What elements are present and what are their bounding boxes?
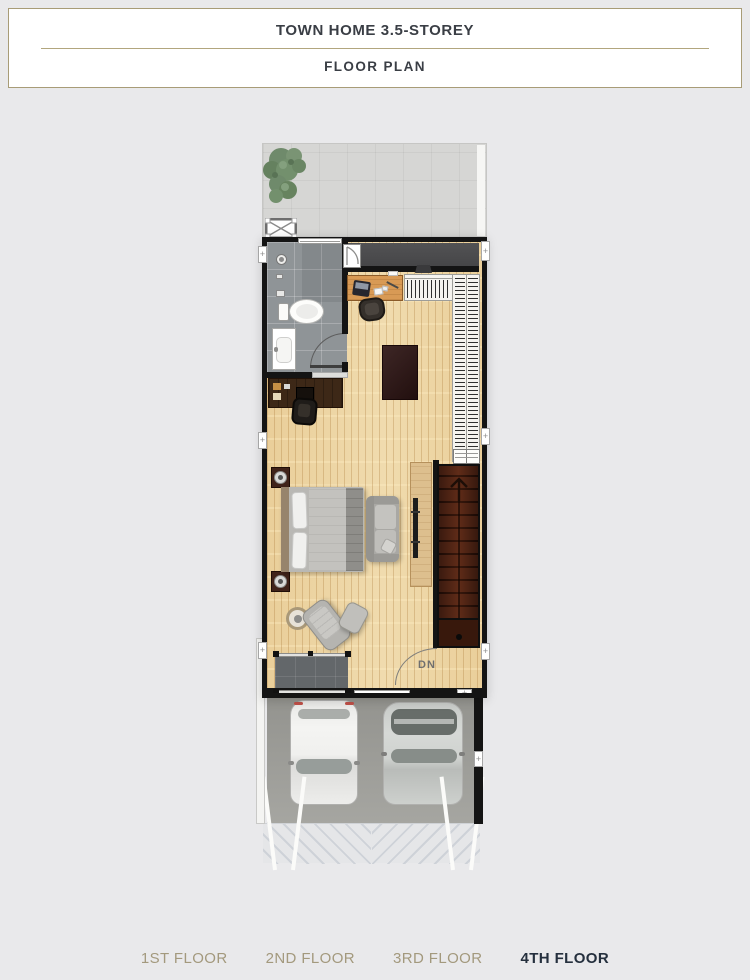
laptop-screen [355,282,369,290]
rail-post [273,651,279,657]
page-title: TOWN HOME 3.5-STOREY [9,22,741,39]
tv-bracket [411,541,420,543]
sofa-arm [374,554,399,562]
hanger-slats [455,278,465,459]
blanket-fold [346,488,363,571]
rail-post [345,651,351,657]
roof-bar [394,719,454,724]
nightstand [271,467,290,488]
tv-bracket [411,511,420,513]
rail-post [273,689,279,697]
tree-icon [263,145,315,203]
windshield [296,759,352,774]
hanger-slats [407,280,450,298]
page-header: TOWN HOME 3.5-STOREY FLOOR PLAN [8,8,742,88]
door-track [357,693,407,694]
stairs [437,464,480,648]
paper-icon [382,285,389,291]
door-arc [344,245,360,267]
rear-window [298,709,350,719]
balcony-rail [275,690,348,697]
side-mirror [354,761,360,765]
terrace-gutter [477,145,485,236]
bathroom-door-leaf [310,365,345,368]
taillight [345,702,354,705]
pillow [291,532,307,570]
paper-icon [388,271,398,276]
side-gutter [256,638,265,824]
shelf-unit [453,449,480,464]
valve-icon [276,274,283,279]
tv-console [410,462,432,587]
headboard [281,487,289,572]
window [298,238,342,244]
rack-rail [405,278,452,279]
side-mirror [459,752,465,756]
lamp-center [278,475,283,480]
side-mirror [381,752,387,756]
laptop-icon [352,280,371,297]
tab-4th-floor[interactable]: 4TH FLOOR [520,950,609,967]
service-ledge [348,243,479,268]
hanger-slats [468,278,478,459]
rail-post [345,689,351,697]
study-chair [291,397,318,426]
tab-2nd-floor[interactable]: 2ND FLOOR [266,950,355,967]
sofa-back [366,496,374,562]
window-marker: + [258,432,267,449]
stair-stringer [458,486,460,621]
ramp-marking-left [270,776,298,870]
ac-unit-icon [415,265,432,273]
faucet [274,347,278,352]
sink-basin [276,337,292,363]
window-marker: + [258,246,267,263]
toilet-bowl [296,304,318,319]
shelf-line [455,457,478,458]
bed [281,487,364,572]
chair-cushion [298,403,311,417]
stairs-landing [439,618,478,646]
book-icon [273,393,281,400]
nightstand [271,571,290,592]
window-marker: + [258,642,267,659]
shelf-line [455,453,478,454]
area-rug [382,345,418,400]
sliding-door [354,690,410,697]
duvet [309,488,346,571]
rail-post [308,651,313,656]
closet-hanging-rack-top [404,274,453,301]
sofa [366,496,399,562]
newel-post [456,634,462,640]
taillight [294,702,303,705]
corridor-wall [346,266,479,272]
rack-divider [466,275,467,461]
book-icon [273,383,281,390]
shower-area [302,242,347,302]
drain-icon [276,290,285,297]
window-marker: + [481,643,490,660]
carport: + [262,696,487,866]
bathroom [267,242,347,378]
window-marker: + [457,689,472,697]
page-subtitle: FLOOR PLAN [9,59,741,74]
window-marker: + [474,751,483,767]
sofa-arm [374,496,399,504]
book-icon [284,384,290,389]
window-line [300,241,340,242]
table-item [294,615,302,623]
title-divider [41,48,709,49]
windshield [391,749,457,763]
tv [413,498,418,558]
seat-cushion [375,505,396,529]
pillow [291,492,307,530]
tab-3rd-floor[interactable]: 3RD FLOOR [393,950,482,967]
window-marker: + [481,428,490,445]
vanity-icon [272,328,296,370]
closet-hanging-rack-right [452,274,480,462]
tab-1st-floor[interactable]: 1ST FLOOR [141,950,228,967]
planter-box-icon [265,218,297,239]
window-marker: + [481,241,490,261]
chair-cushion [364,302,380,316]
bathroom-door-arc [310,333,345,368]
side-mirror [288,761,294,765]
corridor-door [343,244,361,268]
floor-plan: + [262,140,487,880]
dn-label: DN [410,659,444,671]
stairs-up-arrow-icon [447,474,471,504]
floor-tab-bar: 1ST FLOOR 2ND FLOOR 3RD FLOOR 4TH FLOOR [0,950,750,967]
toilet-tank-icon [278,303,289,321]
ramp-marking-right [448,776,476,870]
lamp-center [278,579,283,584]
shower-head-dot [279,257,284,262]
